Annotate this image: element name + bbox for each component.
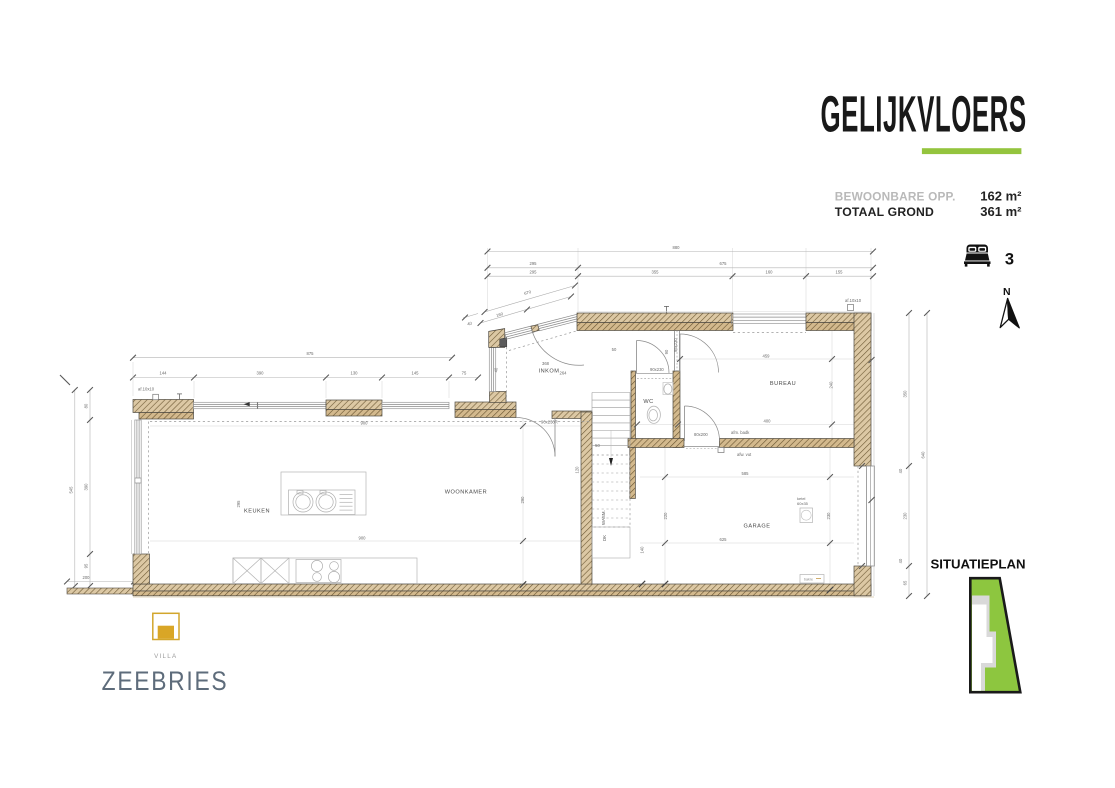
- svg-text:264: 264: [560, 371, 568, 376]
- svg-text:545: 545: [69, 486, 74, 494]
- svg-text:VILLA: VILLA: [154, 653, 177, 660]
- svg-text:368: 368: [542, 361, 550, 366]
- svg-text:144: 144: [160, 371, 168, 376]
- svg-text:875: 875: [307, 351, 315, 356]
- svg-text:230: 230: [826, 512, 831, 520]
- svg-text:120: 120: [575, 466, 580, 474]
- svg-text:bakre: bakre: [804, 578, 813, 582]
- svg-text:afw. vut: afw. vut: [737, 452, 752, 457]
- svg-text:GARAGE: GARAGE: [744, 524, 771, 530]
- svg-text:640: 640: [921, 451, 926, 459]
- svg-text:390: 390: [84, 483, 89, 491]
- svg-text:40: 40: [898, 558, 903, 563]
- svg-text:295: 295: [236, 500, 241, 508]
- svg-text:DK: DK: [602, 535, 607, 541]
- svg-text:WC: WC: [643, 399, 653, 405]
- svg-text:af.10x10: af.10x10: [138, 387, 155, 392]
- svg-text:60x35: 60x35: [797, 501, 809, 506]
- svg-text:40: 40: [494, 367, 499, 372]
- svg-text:355: 355: [652, 270, 660, 275]
- svg-text:400: 400: [764, 419, 772, 424]
- svg-text:af.10x10: af.10x10: [845, 298, 862, 303]
- svg-text:N: N: [1003, 286, 1011, 298]
- svg-text:155: 155: [836, 270, 844, 275]
- svg-text:295: 295: [530, 261, 538, 266]
- svg-text:459: 459: [763, 354, 771, 359]
- svg-text:BEWOONBARE OPP.: BEWOONBARE OPP.: [835, 190, 956, 204]
- svg-text:95x230: 95x230: [673, 338, 678, 352]
- svg-text:130: 130: [351, 371, 359, 376]
- svg-text:140: 140: [640, 546, 645, 554]
- svg-text:BUREAU: BUREAU: [770, 381, 796, 387]
- svg-text:95: 95: [84, 563, 89, 568]
- svg-text:50: 50: [595, 443, 600, 448]
- svg-text:50: 50: [612, 347, 617, 352]
- svg-text:162 m²: 162 m²: [980, 189, 1022, 204]
- svg-text:361 m²: 361 m²: [980, 204, 1022, 219]
- svg-text:90x230R: 90x230R: [541, 420, 558, 425]
- svg-text:INKOM: INKOM: [539, 369, 560, 375]
- svg-text:160: 160: [766, 270, 774, 275]
- svg-text:afm. badk: afm. badk: [731, 430, 750, 435]
- svg-text:65: 65: [903, 580, 908, 585]
- svg-text:3: 3: [1005, 251, 1014, 269]
- svg-text:90: 90: [664, 349, 669, 354]
- svg-text:145: 145: [412, 371, 420, 376]
- svg-text:900: 900: [359, 536, 367, 541]
- svg-text:GELIJKVLOERS: GELIJKVLOERS: [821, 85, 1027, 143]
- svg-text:230: 230: [903, 512, 908, 520]
- svg-text:880: 880: [673, 245, 681, 250]
- svg-text:290: 290: [520, 496, 525, 504]
- svg-text:80: 80: [84, 403, 89, 408]
- svg-text:TOTAAL GROND: TOTAAL GROND: [835, 205, 934, 219]
- svg-text:90x230: 90x230: [650, 367, 664, 372]
- svg-text:390: 390: [257, 371, 265, 376]
- svg-text:625: 625: [720, 537, 728, 542]
- svg-text:295: 295: [530, 270, 538, 275]
- svg-text:WASM.: WASM.: [601, 510, 606, 525]
- svg-text:ZEEBRIES: ZEEBRIES: [102, 668, 229, 697]
- svg-text:675: 675: [720, 261, 728, 266]
- svg-text:KEUKEN: KEUKEN: [244, 509, 270, 515]
- svg-text:200: 200: [83, 575, 91, 580]
- svg-text:75: 75: [462, 371, 467, 376]
- svg-text:40: 40: [898, 468, 903, 473]
- svg-text:585: 585: [742, 471, 750, 476]
- svg-text:220: 220: [663, 512, 668, 520]
- svg-text:SITUATIEPLAN: SITUATIEPLAN: [931, 557, 1026, 572]
- svg-text:900: 900: [361, 421, 369, 426]
- svg-text:350: 350: [903, 390, 908, 398]
- svg-text:80x200: 80x200: [694, 432, 708, 437]
- svg-text:240: 240: [829, 381, 834, 389]
- svg-text:WOONKAMER: WOONKAMER: [445, 490, 487, 496]
